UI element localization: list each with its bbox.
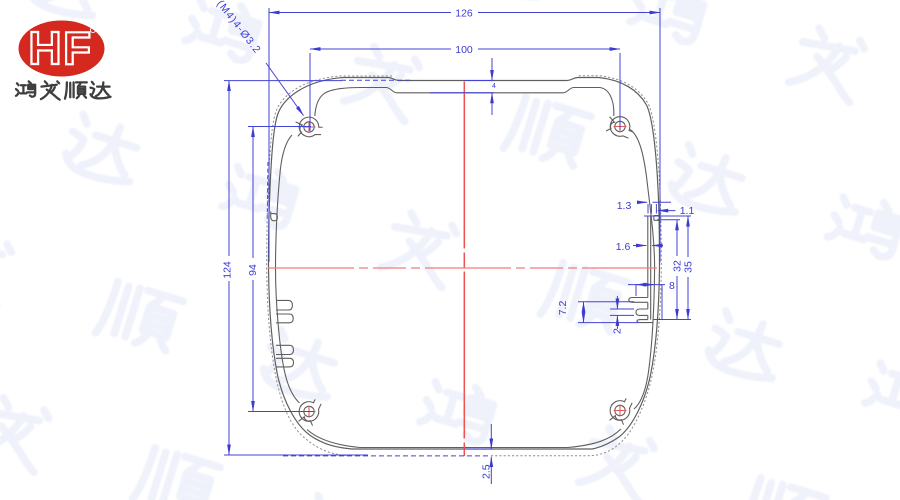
svg-text:HF: HF bbox=[28, 22, 92, 74]
svg-text:1.3: 1.3 bbox=[617, 200, 632, 212]
svg-text:1.1: 1.1 bbox=[680, 205, 695, 217]
svg-text:126: 126 bbox=[455, 8, 473, 20]
svg-text:7.2: 7.2 bbox=[557, 301, 569, 316]
svg-text:2.5: 2.5 bbox=[481, 464, 493, 479]
svg-text:124: 124 bbox=[222, 261, 234, 279]
svg-text:1.6: 1.6 bbox=[616, 241, 631, 253]
svg-text:94: 94 bbox=[247, 264, 259, 276]
svg-text:8: 8 bbox=[669, 280, 675, 292]
svg-text:4: 4 bbox=[492, 83, 496, 90]
svg-text:2: 2 bbox=[612, 328, 624, 334]
svg-text:100: 100 bbox=[455, 44, 473, 56]
svg-text:35: 35 bbox=[683, 261, 695, 273]
